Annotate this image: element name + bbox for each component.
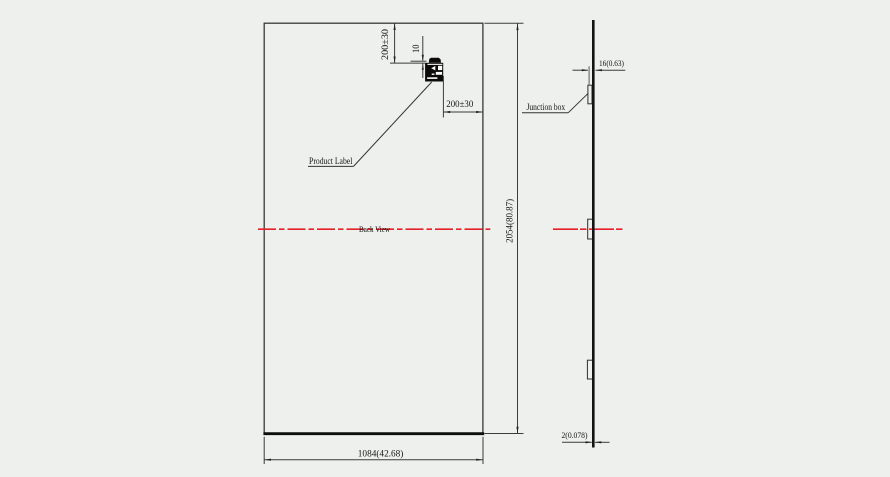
svg-text:2054(80.87): 2054(80.87) [505,199,516,243]
svg-text:200±30: 200±30 [381,29,391,60]
svg-text:1084(42.68): 1084(42.68) [358,449,404,460]
svg-text:Junction box: Junction box [527,103,566,113]
svg-text:Back View: Back View [359,224,391,234]
svg-text:16(0.63): 16(0.63) [599,58,624,68]
svg-text:Product Label: Product Label [309,156,353,167]
svg-text:200±30: 200±30 [446,100,473,110]
svg-text:10: 10 [412,44,422,53]
svg-text:2(0.078): 2(0.078) [562,430,588,440]
